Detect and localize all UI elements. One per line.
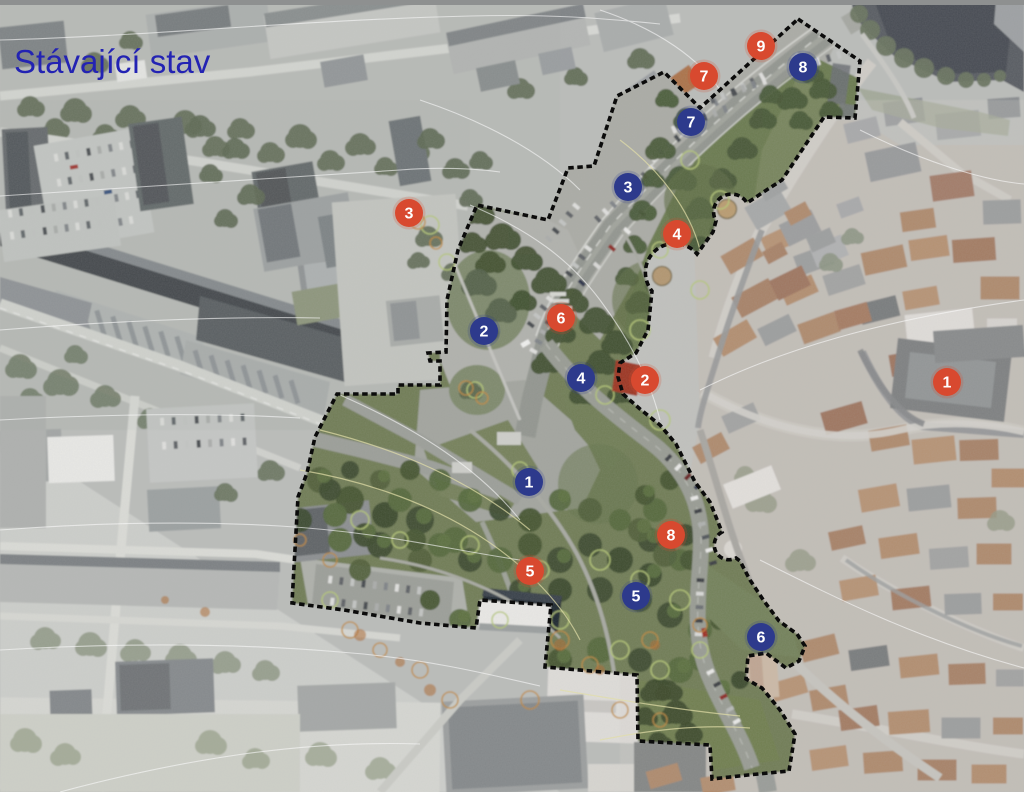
svg-text:6: 6 xyxy=(757,630,766,647)
svg-text:6: 6 xyxy=(557,311,566,328)
svg-text:3: 3 xyxy=(624,180,633,197)
svg-text:Stávající stav: Stávající stav xyxy=(14,43,211,80)
svg-text:9: 9 xyxy=(757,39,766,56)
svg-text:1: 1 xyxy=(525,475,534,492)
svg-text:1: 1 xyxy=(943,375,952,392)
svg-text:2: 2 xyxy=(641,373,650,390)
svg-text:5: 5 xyxy=(526,564,535,581)
svg-text:7: 7 xyxy=(700,69,709,86)
svg-text:8: 8 xyxy=(667,528,676,545)
svg-text:2: 2 xyxy=(480,324,489,341)
svg-text:8: 8 xyxy=(799,60,808,77)
svg-text:4: 4 xyxy=(673,227,682,244)
svg-text:4: 4 xyxy=(577,371,586,388)
svg-text:5: 5 xyxy=(632,589,641,606)
svg-text:3: 3 xyxy=(405,206,414,223)
svg-text:7: 7 xyxy=(687,115,696,132)
